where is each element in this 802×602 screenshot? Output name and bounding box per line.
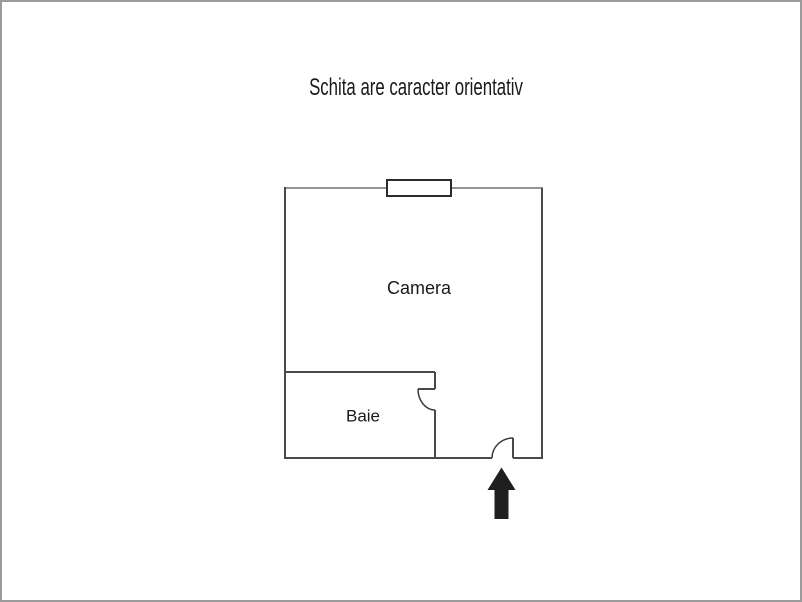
- plan-disclaimer-text: Schita are caracter orientativ: [309, 74, 523, 103]
- window-symbol-icon: [387, 180, 451, 196]
- door-swing-arc-icon: [418, 389, 513, 458]
- room-label-baie: Baie: [346, 408, 380, 425]
- room-label-camera: Camera: [387, 279, 451, 297]
- entrance-arrow-icon: [488, 468, 516, 520]
- floor-plan-page: Schita are caracter orientativ Camera Ba…: [0, 0, 802, 602]
- plan-canvas: Schita are caracter orientativ Camera Ba…: [0, 0, 802, 602]
- plan-outer-walls: [285, 187, 542, 458]
- plan-disclaimer-title: Schita are caracter orientativ: [263, 74, 568, 103]
